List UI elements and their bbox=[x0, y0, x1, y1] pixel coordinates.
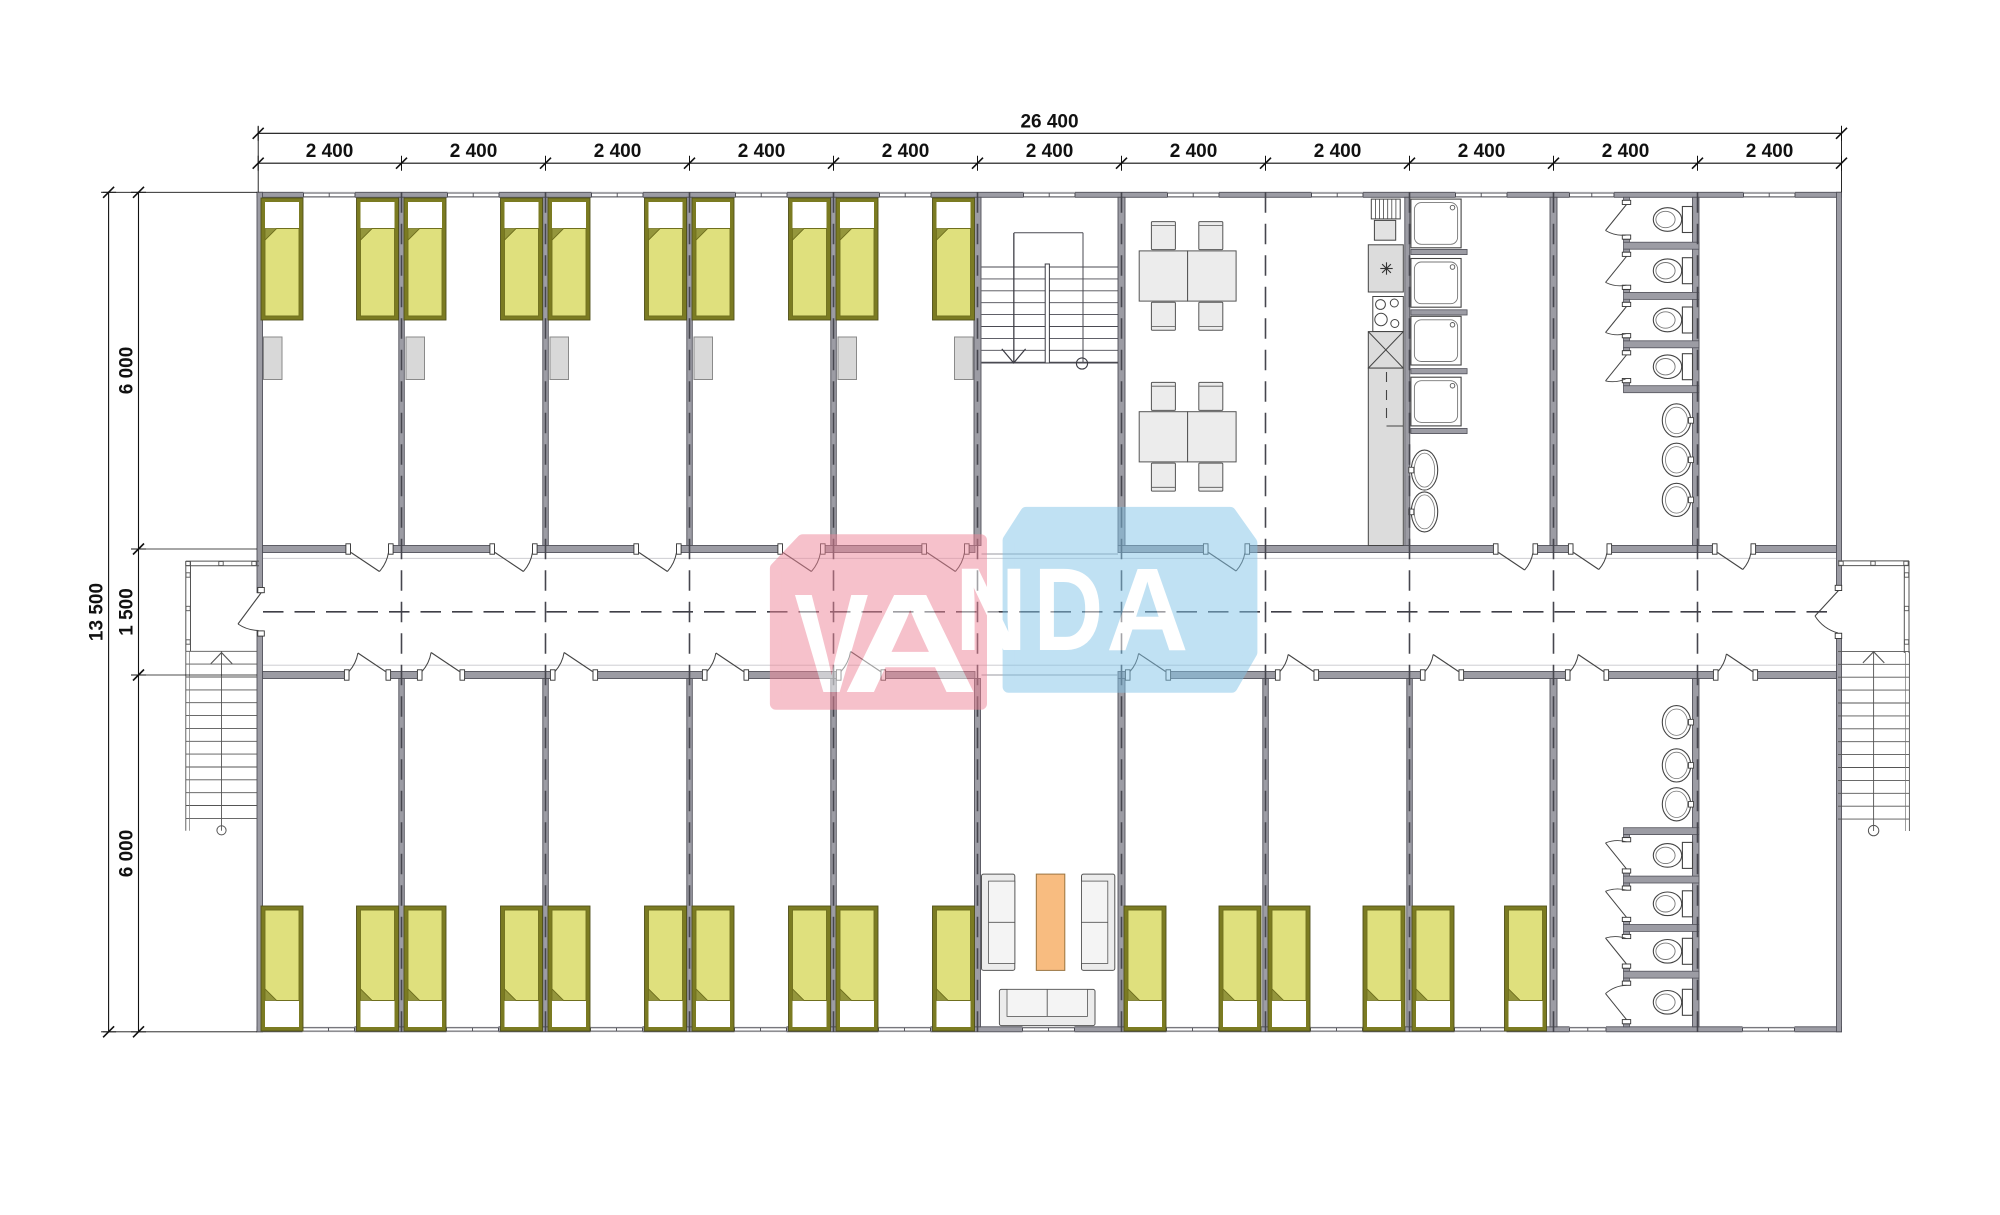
svg-text:26 400: 26 400 bbox=[1020, 112, 1078, 133]
svg-text:2 400: 2 400 bbox=[738, 141, 786, 162]
svg-text:6 000: 6 000 bbox=[116, 830, 137, 878]
svg-text:N: N bbox=[955, 544, 1027, 676]
svg-text:1 500: 1 500 bbox=[116, 588, 137, 636]
svg-text:D: D bbox=[1033, 543, 1103, 675]
svg-text:2 400: 2 400 bbox=[306, 141, 354, 162]
svg-text:2 400: 2 400 bbox=[1314, 141, 1362, 162]
svg-text:6 000: 6 000 bbox=[116, 347, 137, 395]
svg-text:2 400: 2 400 bbox=[594, 141, 642, 162]
svg-text:2 400: 2 400 bbox=[1602, 141, 1650, 162]
svg-text:2 400: 2 400 bbox=[1170, 141, 1218, 162]
svg-text:2 400: 2 400 bbox=[1458, 141, 1506, 162]
svg-text:2 400: 2 400 bbox=[1746, 141, 1794, 162]
svg-text:13 500: 13 500 bbox=[87, 583, 108, 641]
svg-text:2 400: 2 400 bbox=[450, 141, 498, 162]
svg-text:A: A bbox=[1106, 543, 1188, 675]
svg-text:2 400: 2 400 bbox=[1026, 141, 1074, 162]
svg-text:2 400: 2 400 bbox=[882, 141, 930, 162]
